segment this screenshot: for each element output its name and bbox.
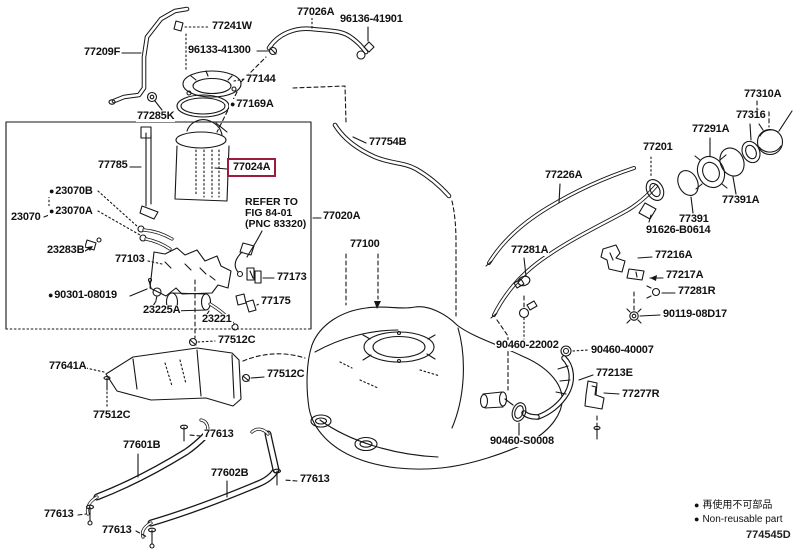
fuel-tubes-23070: [44, 191, 172, 249]
part-label-23225A[interactable]: 23225A: [142, 305, 181, 316]
part-label-77217A[interactable]: 77217A: [665, 270, 704, 281]
bracket-77173: [247, 268, 274, 283]
part-label-77216A[interactable]: 77216A: [654, 250, 693, 261]
part-label-96136-41901[interactable]: 96136-41901: [339, 14, 404, 25]
part-label-23221[interactable]: 23221: [201, 314, 233, 325]
non-reusable-dot: ●: [694, 514, 699, 524]
non-reusable-dot: ●: [49, 206, 54, 216]
part-label-77613[interactable]: 77613: [43, 509, 75, 520]
part-label-90460-S0008[interactable]: 90460-S0008: [489, 436, 555, 447]
clip-23283b: [85, 238, 101, 251]
part-label-77512C[interactable]: 77512C: [92, 410, 131, 421]
part-label-77173[interactable]: 77173: [276, 272, 308, 283]
part-label-77026A[interactable]: 77026A: [296, 7, 335, 18]
part-label-23070A[interactable]: ●23070A: [48, 206, 94, 217]
part-label-77020A[interactable]: 77020A: [322, 211, 361, 222]
part-label-77241W[interactable]: 77241W: [211, 21, 253, 32]
part-label-77310A[interactable]: 77310A: [743, 89, 782, 100]
part-label-77512C[interactable]: 77512C: [217, 335, 256, 346]
part-label-77391A[interactable]: 77391A: [721, 195, 760, 206]
part-label-77175[interactable]: 77175: [260, 296, 292, 307]
part-label-77281R[interactable]: 77281R: [677, 286, 716, 297]
part-label-77601B[interactable]: 77601B: [122, 440, 161, 451]
legend-non-reusable-en: ●Non-reusable part: [694, 513, 782, 526]
part-label-77785[interactable]: 77785: [97, 160, 129, 171]
part-label-77285K[interactable]: 77285K: [136, 111, 175, 122]
pump-plate-77144: [183, 71, 244, 97]
part-label-77213E[interactable]: 77213E: [595, 368, 634, 379]
part-label-77100[interactable]: 77100: [349, 239, 381, 250]
part-label-91626-B0614[interactable]: 91626-B0614: [645, 225, 711, 236]
part-label-90119-08D17[interactable]: 90119-08D17: [662, 309, 728, 320]
part-label-77641A[interactable]: 77641A: [48, 361, 87, 372]
non-reusable-dot: ●: [694, 500, 699, 510]
part-label-77103[interactable]: 77103: [114, 254, 146, 265]
part-label-77291A[interactable]: 77291A: [691, 124, 730, 135]
part-label-77512C[interactable]: 77512C: [266, 369, 305, 380]
tube-77754b: [293, 86, 456, 316]
part-label-77602B[interactable]: 77602B: [210, 468, 249, 479]
part-label-90301-08019[interactable]: ●90301-08019: [47, 290, 118, 301]
non-reusable-dot: ●: [230, 99, 235, 109]
legend-non-reusable-jp: ●再使用不可部品: [694, 499, 772, 512]
part-label-96133-41300[interactable]: 96133-41300: [187, 45, 252, 56]
part-label-77277R[interactable]: 77277R: [621, 389, 660, 400]
part-label-77144[interactable]: 77144: [245, 74, 277, 85]
part-label-23283B[interactable]: 23283B: [46, 245, 85, 256]
part-label-90460-40007[interactable]: 90460-40007: [590, 345, 655, 356]
part-label-77316[interactable]: 77316: [735, 110, 767, 121]
figure-code: 774545D: [746, 529, 791, 541]
non-reusable-dot: ●: [48, 290, 53, 300]
fuel-pump-77024a: [175, 120, 229, 201]
part-label-77281A[interactable]: 77281A: [510, 245, 549, 256]
part-label-77024A-highlighted[interactable]: 77024A: [227, 158, 276, 177]
connector-refer-note: [235, 231, 262, 277]
part-label-77201[interactable]: 77201: [642, 142, 674, 153]
part-label-77613[interactable]: 77613: [101, 525, 133, 536]
grommet-77285k: [148, 93, 163, 111]
part-label-77169A[interactable]: ●77169A: [229, 99, 275, 110]
part-label-77209F[interactable]: 77209F: [83, 47, 121, 58]
part-label-77754B[interactable]: 77754B: [368, 137, 407, 148]
part-label-23070B[interactable]: ●23070B: [48, 186, 94, 197]
bracket-77175: [236, 294, 261, 312]
bracket-77103: [148, 248, 231, 296]
gasket-77169a: [177, 95, 229, 117]
part-label-77613[interactable]: 77613: [203, 429, 235, 440]
part-label-23070[interactable]: 23070: [10, 212, 42, 223]
part-label-77613[interactable]: 77613: [299, 474, 331, 485]
part-label-77226A[interactable]: 77226A: [544, 170, 583, 181]
non-reusable-dot: ●: [49, 186, 54, 196]
refer-note: REFER TO FIG 84-01 (PNC 83320): [245, 197, 306, 230]
oring-90301: [130, 279, 152, 297]
fuel-sender-77785: [130, 127, 158, 219]
parts-diagram-page: 77209F 77241W 96133-41300 77026A 96136-4…: [0, 0, 796, 549]
part-label-90460-22002[interactable]: 90460-22002: [495, 340, 560, 351]
